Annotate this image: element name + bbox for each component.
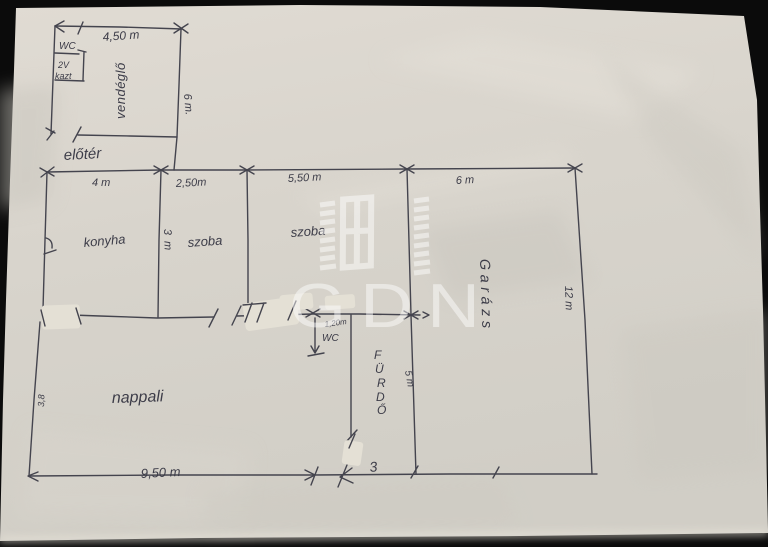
svg-text:WC: WC [59,41,76,52]
svg-text:R: R [377,376,386,390]
svg-text:vendéglő: vendéglő [113,62,128,119]
svg-text:2,50m: 2,50m [175,176,207,190]
svg-text:kazt: kazt [55,71,72,81]
svg-text:szoba: szoba [187,233,223,250]
svg-text:4 m: 4 m [92,177,110,189]
svg-text:12 m: 12 m [562,286,575,311]
svg-text:Ü: Ü [375,362,384,376]
svg-text:6 m.: 6 m. [181,93,195,115]
svg-text:2V: 2V [57,60,70,70]
svg-text:nappali: nappali [112,388,165,407]
svg-text:D: D [376,390,385,404]
svg-text:3,8: 3,8 [36,394,46,407]
svg-text:4,50 m: 4,50 m [102,27,140,44]
svg-text:F: F [374,348,382,362]
svg-text:6 m: 6 m [456,174,475,187]
svg-text:3 m: 3 m [161,229,174,252]
svg-text:5,50 m: 5,50 m [288,171,322,185]
svg-text:9,50 m: 9,50 m [140,464,181,481]
svg-text:előtér: előtér [63,145,102,164]
svg-text:Ő: Ő [377,402,386,417]
svg-text:GDN: GDN [289,272,494,341]
